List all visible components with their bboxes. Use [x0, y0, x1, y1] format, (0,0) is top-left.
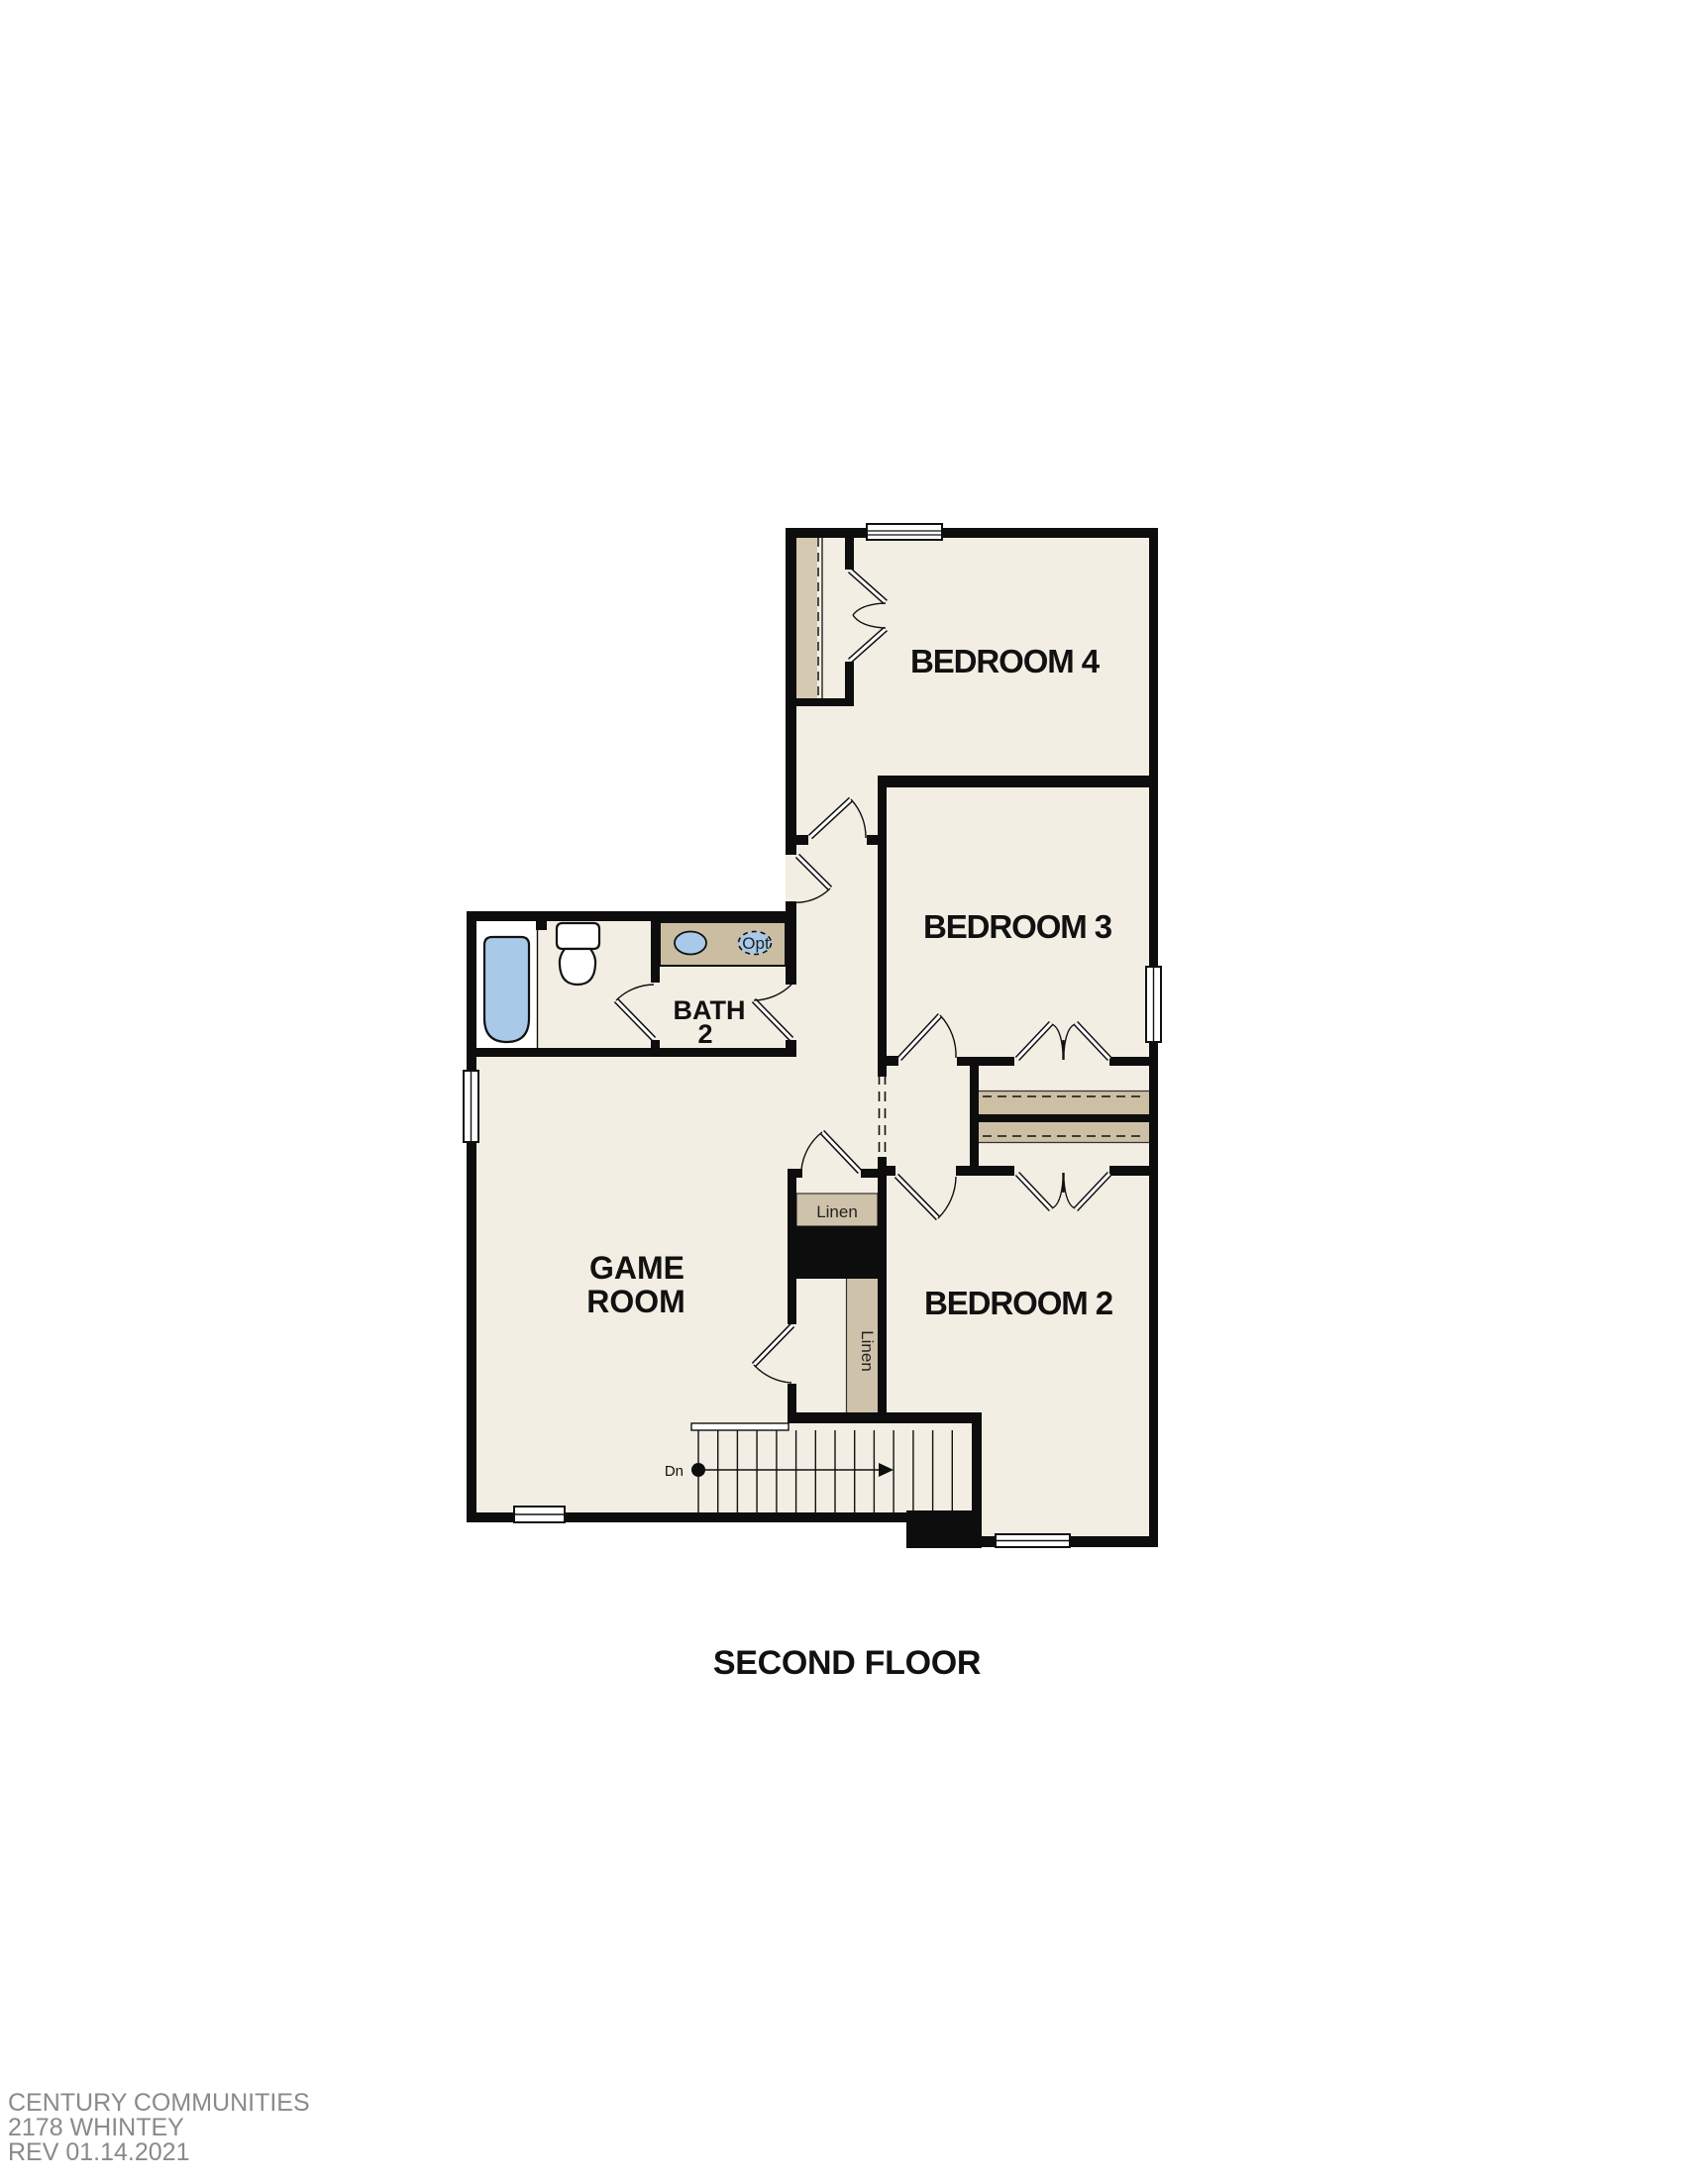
svg-text:2178 WHINTEY: 2178 WHINTEY — [8, 2114, 184, 2141]
svg-text:BEDROOM 3: BEDROOM 3 — [923, 908, 1112, 945]
svg-text:REV 01.14.2021: REV 01.14.2021 — [8, 2138, 189, 2166]
svg-text:Dn: Dn — [665, 1463, 684, 1480]
svg-text:BEDROOM 2: BEDROOM 2 — [924, 1285, 1113, 1321]
svg-text:Linen: Linen — [816, 1202, 858, 1221]
svg-text:Opt: Opt — [742, 934, 770, 953]
svg-text:GAME: GAME — [589, 1250, 684, 1286]
svg-text:Linen: Linen — [858, 1330, 877, 1372]
svg-text:ROOM: ROOM — [586, 1284, 685, 1319]
svg-text:CENTURY COMMUNITIES: CENTURY COMMUNITIES — [8, 2089, 310, 2117]
svg-text:2: 2 — [697, 1019, 712, 1049]
svg-text:BEDROOM 4: BEDROOM 4 — [910, 643, 1101, 679]
svg-text:SECOND FLOOR: SECOND FLOOR — [713, 1644, 981, 1682]
